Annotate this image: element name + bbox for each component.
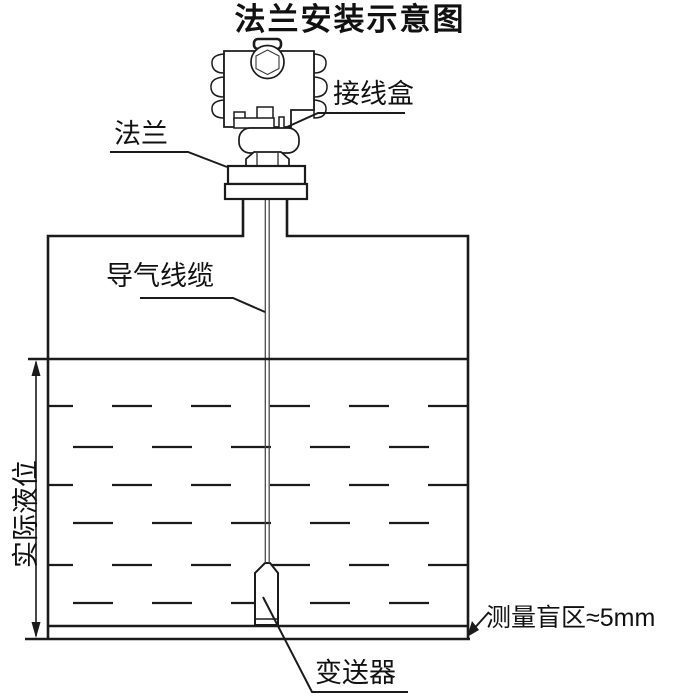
air-cable-leader	[140, 298, 265, 312]
page-title: 法兰安装示意图	[0, 3, 700, 37]
probe-body	[255, 563, 278, 625]
transmitter-label: 变送器	[315, 659, 396, 689]
blind-zone-label: 测量盲区≈5mm	[486, 605, 655, 633]
diagram-canvas: 法兰安装示意图 接线盒 法兰 导气线缆 实际液位 变送器 测量盲区≈5mm	[0, 0, 700, 700]
flange-assembly	[225, 166, 307, 199]
flange-leader	[110, 152, 227, 167]
junction-box-label: 接线盒	[333, 80, 414, 110]
junction-box-leader	[287, 113, 405, 127]
flange-plate-bottom	[225, 184, 307, 199]
dimension-arrowhead-down	[32, 622, 41, 638]
flange-plate-top	[228, 166, 305, 184]
transmitter-head	[211, 39, 327, 168]
swivel-connector	[239, 128, 299, 153]
tank-outline	[25, 199, 470, 639]
flange-label: 法兰	[114, 120, 168, 150]
dimension-arrowhead-up	[32, 360, 41, 376]
actual-level-label: 实际液位	[12, 429, 40, 599]
cable-line	[265, 185, 269, 563]
air-cable-label: 导气线缆	[106, 262, 214, 292]
